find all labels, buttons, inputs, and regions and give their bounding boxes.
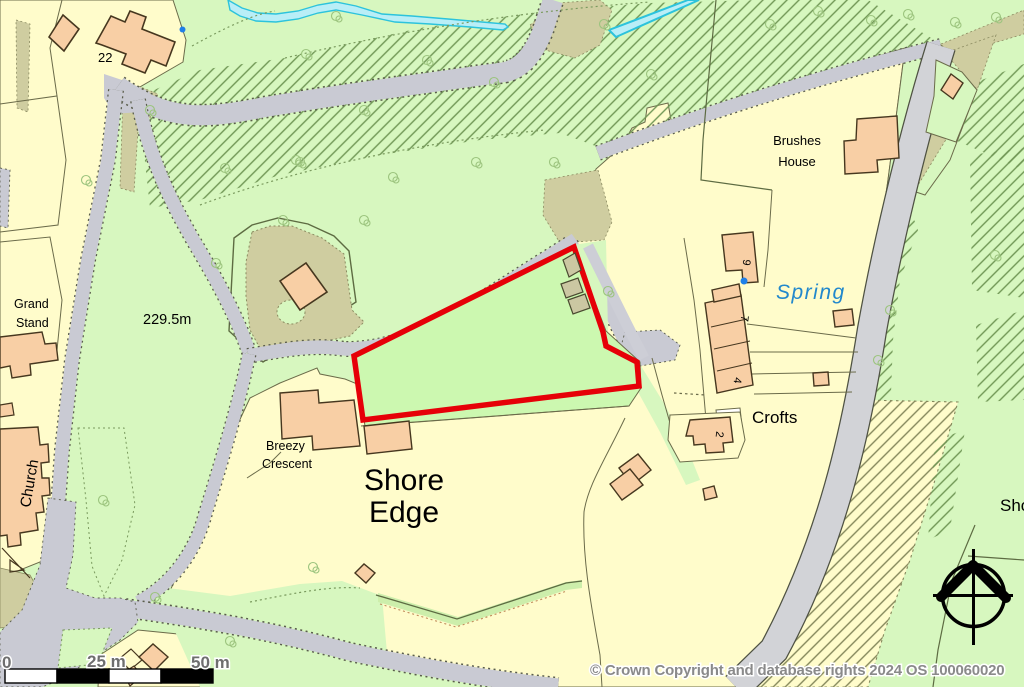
svg-text:0: 0 xyxy=(2,653,11,672)
svg-text:Breezy: Breezy xyxy=(266,439,306,453)
svg-text:Grand: Grand xyxy=(14,297,49,311)
svg-text:50 m: 50 m xyxy=(191,653,230,672)
svg-text:Sho: Sho xyxy=(1000,496,1024,515)
svg-text:Crofts: Crofts xyxy=(752,408,797,427)
svg-text:House: House xyxy=(778,154,816,169)
svg-text:Crescent: Crescent xyxy=(262,457,313,471)
svg-text:22: 22 xyxy=(98,50,112,65)
svg-text:Brushes: Brushes xyxy=(773,133,821,148)
svg-text:Shore: Shore xyxy=(364,464,444,497)
svg-text:Spring: Spring xyxy=(776,281,846,304)
svg-text:© Crown Copyright and database: © Crown Copyright and database rights 20… xyxy=(590,662,1004,679)
svg-text:Edge: Edge xyxy=(369,496,439,529)
svg-text:Stand: Stand xyxy=(16,316,49,330)
svg-text:25 m: 25 m xyxy=(87,652,126,671)
svg-text:229.5m: 229.5m xyxy=(143,312,191,328)
